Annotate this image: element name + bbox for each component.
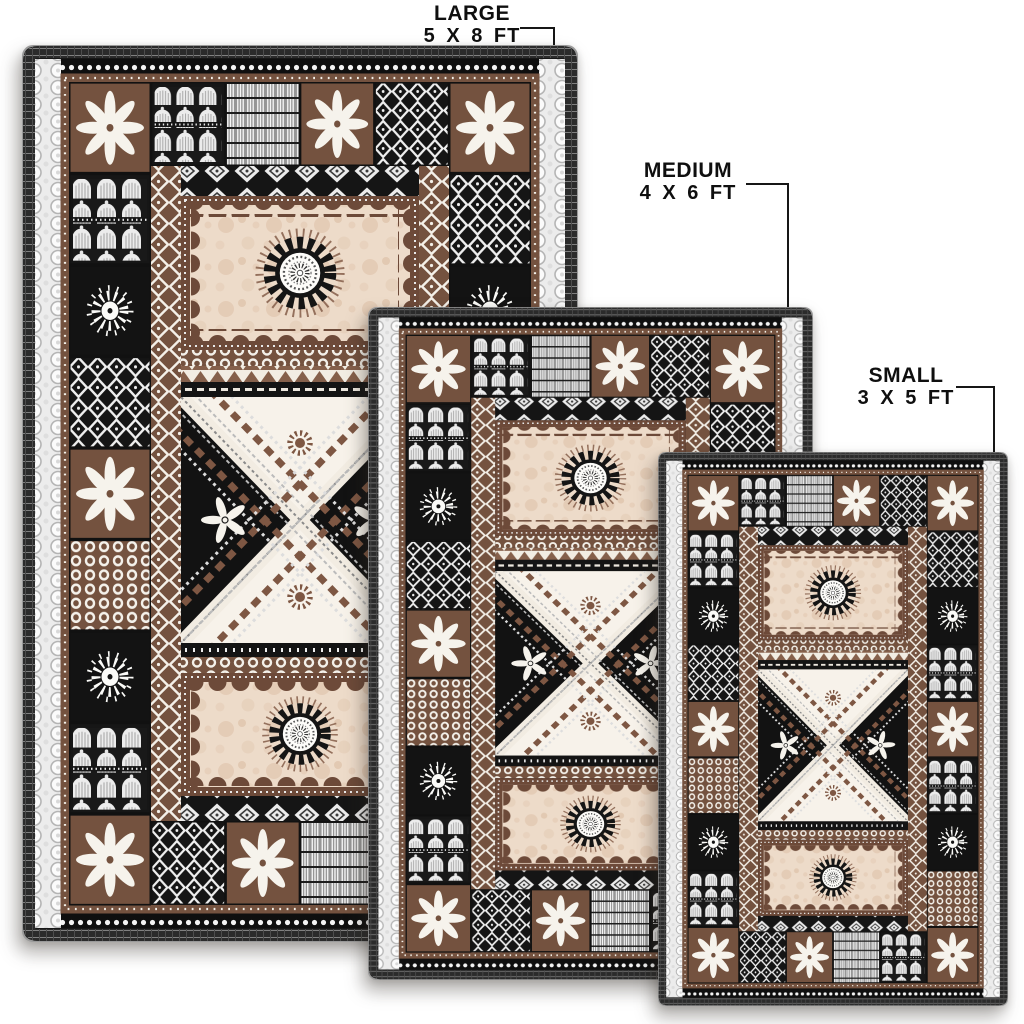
size-dimensions-small: 3 X 5 FT [850,387,962,409]
size-label-medium: MEDIUM 4 X 6 FT [628,160,748,204]
rug-small-image [658,452,1008,1006]
size-label-large: LARGE 5 X 8 FT [412,3,532,47]
leader-line-medium [746,183,789,309]
size-dimensions-large: 5 X 8 FT [412,25,532,47]
size-name-small: SMALL [850,365,962,387]
size-name-medium: MEDIUM [628,160,748,182]
size-dimensions-medium: 4 X 6 FT [628,182,748,204]
size-label-small: SMALL 3 X 5 FT [850,365,962,409]
size-name-large: LARGE [412,3,532,25]
rug-small [658,452,1008,1006]
